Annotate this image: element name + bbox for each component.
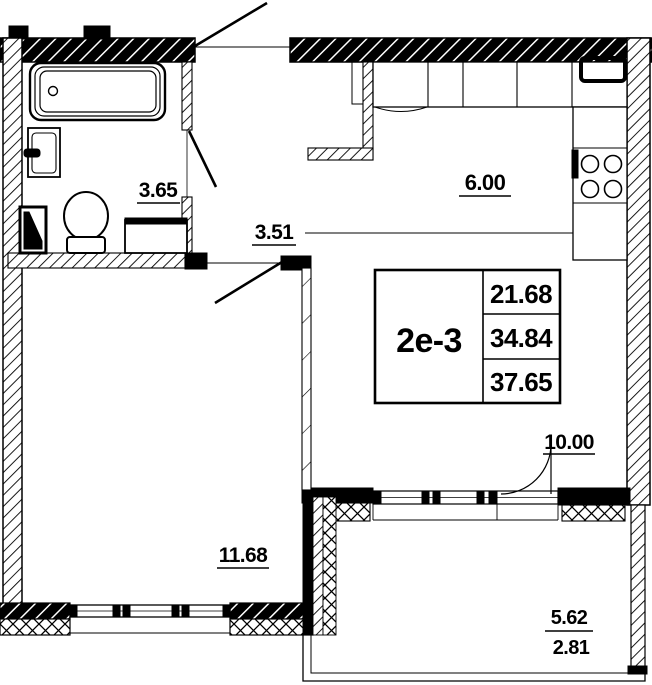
wash-basin bbox=[24, 128, 60, 177]
entry-door-swing bbox=[195, 3, 267, 46]
insulation-band bbox=[562, 505, 625, 521]
wall-segment bbox=[303, 490, 313, 635]
bathroom-bottom-wall bbox=[8, 253, 185, 268]
kitchen-partition-foot bbox=[308, 148, 373, 160]
kitchen-fixtures bbox=[373, 58, 627, 260]
bedroom-door-swing bbox=[215, 262, 282, 303]
balcony-window bbox=[373, 491, 558, 520]
burner bbox=[605, 156, 622, 173]
living-area-value: 21.68 bbox=[490, 279, 552, 309]
bathroom-fixtures bbox=[20, 63, 187, 253]
outer-wall-right bbox=[627, 38, 650, 505]
bathtub-drain bbox=[49, 87, 58, 96]
bedroom-area-label: 11.68 bbox=[219, 544, 268, 567]
burner bbox=[582, 181, 599, 198]
balcony-window-wall bbox=[302, 444, 630, 521]
bedroom-balcony-wall bbox=[303, 490, 336, 635]
kitchen-counter-top bbox=[373, 62, 627, 112]
outer-wall-top-left bbox=[0, 38, 195, 62]
vent-shaft bbox=[20, 207, 46, 253]
floor-plan: 2е-3 21.68 34.84 37.65 3.65 3.51 6.00 10… bbox=[0, 0, 652, 685]
room-labels: 3.65 3.51 6.00 10.00 11.68 5.62 2.81 bbox=[137, 170, 595, 659]
toilet bbox=[64, 192, 108, 253]
burner bbox=[582, 156, 599, 173]
wall-segment bbox=[0, 603, 70, 619]
insulation-band bbox=[230, 619, 313, 635]
balcony-wall-right bbox=[631, 505, 645, 668]
bathtub bbox=[30, 63, 165, 120]
bathroom-door-swing bbox=[189, 131, 216, 187]
bathroom-wall bbox=[182, 62, 192, 130]
total-area-value: 37.65 bbox=[490, 367, 552, 397]
faucet bbox=[24, 149, 40, 157]
wall-pilaster bbox=[9, 26, 28, 39]
balcony-outline bbox=[303, 635, 645, 681]
burner bbox=[605, 181, 622, 198]
bedroom-window bbox=[70, 605, 230, 633]
balcony-area-reduced-label: 2.81 bbox=[553, 637, 590, 659]
wall-pilaster bbox=[84, 26, 110, 39]
stove-control bbox=[572, 150, 578, 178]
floor-plan-page: 2е-3 21.68 34.84 37.65 3.65 3.51 6.00 10… bbox=[0, 0, 652, 685]
bathroom-area-label: 3.65 bbox=[139, 179, 178, 202]
bedroom-bottom-wall bbox=[0, 603, 317, 635]
wall-cap bbox=[185, 253, 207, 269]
insulation-band bbox=[0, 619, 70, 635]
wall-segment bbox=[313, 497, 323, 635]
bedroom-partition bbox=[302, 268, 311, 490]
washing-machine bbox=[125, 218, 187, 253]
kitchen-partition bbox=[363, 62, 373, 160]
insulation-band bbox=[323, 497, 336, 635]
hallway-area-label: 3.51 bbox=[255, 221, 294, 244]
balcony-area-full-label: 5.62 bbox=[551, 607, 588, 629]
hall-closet-line bbox=[352, 62, 363, 104]
apartment-area-value: 34.84 bbox=[490, 323, 553, 353]
spec-table: 2е-3 21.68 34.84 37.65 bbox=[375, 270, 560, 403]
outer-wall-left bbox=[3, 38, 22, 618]
living-room-area-label: 10.00 bbox=[544, 431, 594, 454]
interior-walls bbox=[8, 62, 373, 490]
balcony-wall-cap bbox=[628, 666, 647, 674]
kitchen-area-label: 6.00 bbox=[465, 170, 506, 195]
unit-type-label: 2е-3 bbox=[396, 322, 462, 360]
wall-segment bbox=[558, 488, 630, 505]
